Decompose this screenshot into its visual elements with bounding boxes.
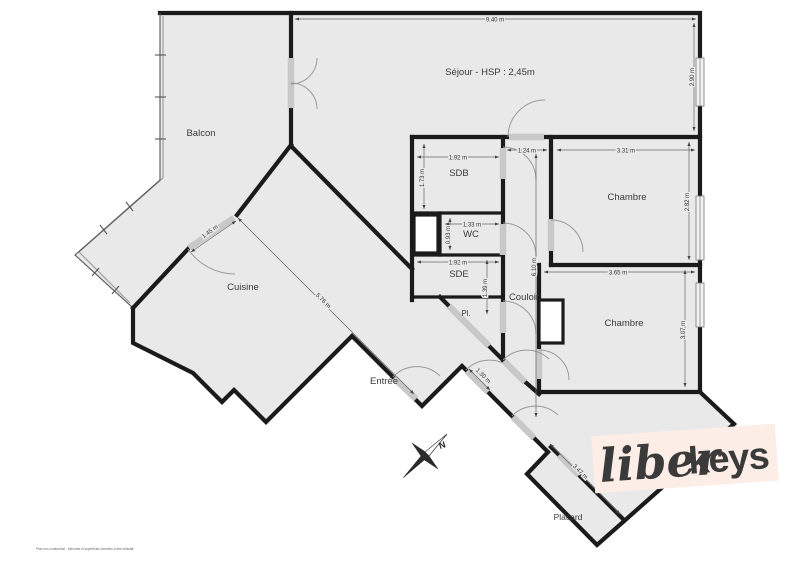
shaft-chambre2 bbox=[539, 300, 563, 343]
room-label-couloir: Couloir bbox=[509, 292, 539, 303]
dim-sde-width: 1.92 m bbox=[449, 261, 467, 267]
dim-sde-height: 1.39 m bbox=[483, 279, 489, 297]
compass-north-label: N bbox=[438, 439, 447, 451]
window-chambre1-icon bbox=[696, 196, 704, 260]
window-chambre2-icon bbox=[696, 283, 704, 327]
room-label-sde: SDE bbox=[449, 269, 469, 280]
room-label-wc: WC bbox=[463, 229, 479, 240]
room-label-balcon: Balcon bbox=[186, 128, 215, 139]
room-label-sejour: Séjour - HSP : 2,45m bbox=[445, 67, 535, 78]
room-label-cuisine: Cuisine bbox=[227, 282, 259, 293]
dim-couloir-height: 6.10 m bbox=[532, 258, 538, 276]
dim-wc-height: 0.93 m bbox=[446, 226, 452, 244]
dim-chambre1-height: 2.82 m bbox=[685, 193, 691, 211]
shaft-wc bbox=[414, 215, 438, 253]
floor-plan-page: 9.40 m 2.90 m 1.92 m 1.73 m 1.24 m 3.31 … bbox=[0, 0, 800, 566]
room-label-pl: Pl. bbox=[461, 309, 470, 318]
dim-chambre1-width: 3.31 m bbox=[617, 149, 635, 155]
room-label-entree: Entrée bbox=[370, 376, 398, 387]
dim-chambre2-width: 3.65 m bbox=[609, 271, 627, 277]
dim-couloir-width: 1.24 m bbox=[518, 149, 536, 155]
room-label-placard: Placard bbox=[554, 512, 583, 522]
dim-sejour-height: 2.90 m bbox=[690, 68, 696, 86]
dim-sdb-width: 1.92 m bbox=[449, 156, 467, 162]
room-label-chambre2: Chambre bbox=[604, 318, 643, 329]
window-sejour-icon bbox=[696, 58, 704, 106]
dim-sejour-width: 9.40 m bbox=[486, 18, 504, 24]
dim-sdb-height: 1.73 m bbox=[420, 169, 426, 187]
dim-wc-width: 1.33 m bbox=[463, 223, 481, 229]
compass-icon: N bbox=[403, 434, 447, 478]
room-label-sdb: SDB bbox=[449, 168, 469, 179]
dim-chambre2-height: 3.07 m bbox=[681, 321, 687, 339]
logo-bold-text: keys bbox=[687, 435, 770, 483]
floor-plan-drawing: 9.40 m 2.90 m 1.92 m 1.73 m 1.24 m 3.31 … bbox=[0, 0, 800, 566]
disclaimer-text: Plan non contractuel - Mesures et superf… bbox=[36, 547, 134, 551]
room-label-chambre1: Chambre bbox=[607, 192, 646, 203]
